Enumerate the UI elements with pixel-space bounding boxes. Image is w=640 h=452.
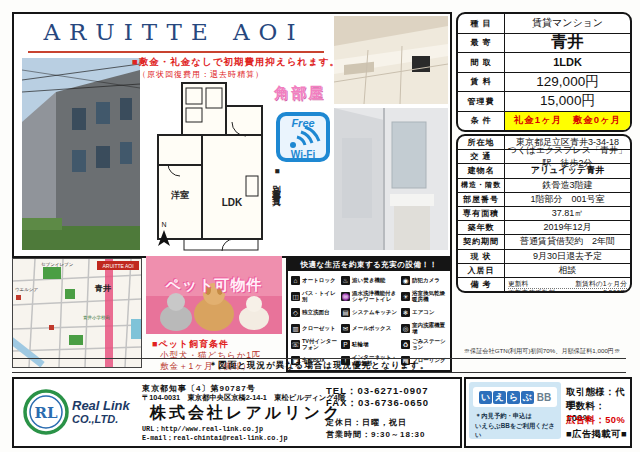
mailbox-icon: ✉ (341, 324, 350, 333)
table-row: 構造・階数鉄骨造3階建 (458, 179, 630, 193)
equipment-item: ▤システムキッチン (341, 304, 401, 320)
table-row: 最 寄青井 (458, 34, 630, 54)
vanity-icon: ◇ (291, 308, 300, 317)
table-row-conditions: 条 件礼金1ヶ月 敷金0ヶ月 (458, 112, 630, 131)
other-room-photo-note: ■別号室参考写真 (271, 166, 283, 192)
catch-copy-line2: （原状回復費用：退去時精算） (138, 69, 264, 80)
pet-photo (146, 256, 282, 334)
table-row: 部屋番号1階部分 001号室 (458, 193, 630, 207)
equipment-item: ◉防犯カメラ (401, 272, 449, 288)
equipment-item: ⌂オートロック (291, 272, 341, 288)
ierabu-note1: ＊内見予約・申込は (475, 412, 532, 421)
table-row: 管理費15,000円 (458, 92, 630, 112)
advertising-fee: 広告料：50% (566, 414, 625, 427)
equipment-item: ◫バス・トイレ別 (291, 288, 341, 304)
company-logo-text2: CO.,LTD. (72, 413, 118, 425)
company-box: RL Real Link CO.,LTD. 東京都知事〔4〕第90787号 〒1… (12, 377, 462, 448)
company-fax: FAX：03-6736-0650 (326, 397, 429, 410)
equipment-item: ◎室内洗濯機置場 (401, 320, 449, 336)
main-photo-box: ARUITTE AOI ■敷金・礼金なしで初期費用抑えられます。 （原状回復費用… (12, 12, 452, 258)
ierabu-logo-bb: BB (537, 392, 551, 403)
bathroom-photo (334, 108, 448, 250)
remarks-row: 備 考 更新料新賃料の1ヶ月分 更新事務手数料5,500円 解約予告2ヶ月前 損… (458, 278, 630, 291)
building-exterior-photo (22, 58, 140, 250)
map-drug-label: ウエルシア (15, 287, 38, 292)
agency-box: い え ら ぶ BB ＊内見予約・申込は いえらぶBBをご利用ください 取引態様… (464, 377, 632, 448)
map-conv-label: セブンイレブン (41, 262, 74, 267)
room-ldk-label: LDK (222, 197, 243, 208)
svg-text:Free: Free (291, 117, 314, 129)
disclaimer-strip: ＊図面と現況が異なる場合は現況優先となります。 (12, 358, 626, 373)
security-camera-icon: ◉ (401, 276, 410, 285)
ierabu-panel: い え ら ぶ BB ＊内見予約・申込は いえらぶBBをご利用ください (469, 382, 561, 439)
title-underline (28, 51, 324, 53)
company-name: 株式会社レアルリンク (150, 403, 342, 424)
bicycle-parking-icon: P (341, 340, 350, 349)
ierabu-logo-kana: ぶ (521, 391, 534, 404)
aircon-icon: ❄ (401, 308, 410, 317)
equipment-grid: ⌂オートロック ♨追い焚き機能 ◉防犯カメラ ◫バス・トイレ別 ♒温水洗浄機能付… (288, 271, 450, 368)
area-map: ARUITTE AOI 青井 セブンイレブン ウエルシア 青井小学校前 (12, 258, 142, 368)
table-row: 間 取1LDK (458, 53, 630, 73)
table-row: 築年数2019年12月 (458, 221, 630, 235)
free-wifi-icon: Free Wi-Fi (276, 112, 330, 162)
kitchen-photo (334, 16, 448, 104)
guarantee-note: ※保証会社GTN(利用可)初回70%、月額保証料1,000円※ (456, 347, 628, 356)
equipment-header: 快適な生活を約束する充実の設備！！ (288, 258, 450, 271)
equipment-item: P駐輪場 (341, 336, 401, 352)
map-school-label: 青井小学校前 (83, 315, 111, 320)
bathroom-dryer-icon: ☀ (401, 292, 410, 301)
equipment-item: ♒温水洗浄機能付き シャワートイレ (341, 288, 401, 304)
table-row: 賃 料129,000円 (458, 73, 630, 93)
equipment-item: ☏TV付インターフォン (291, 336, 341, 352)
table-row: 種 目賃貸マンション (458, 14, 630, 34)
map-building-tag: ARUITTE AOI (102, 263, 133, 269)
ad-posting-ok: ■広告掲載可■ (566, 428, 627, 441)
map-station-label: 青井 (94, 284, 112, 293)
equipment-item: ♻ごみステーション (401, 336, 449, 352)
pet-ok-banner: ペット可物件 (150, 276, 278, 295)
reheating-bath-icon: ♨ (341, 276, 350, 285)
real-link-logo-icon: RL (22, 388, 70, 436)
company-hours: 営業時間：9:30～18:30 (326, 429, 425, 440)
property-flyer: ARUITTE AOI ■敷金・礼金なしで初期費用抑えられます。 （原状回復費用… (0, 0, 640, 452)
autolock-icon: ⌂ (291, 276, 300, 285)
table-row: 建物名アリュイッテ青井 (458, 164, 630, 178)
detail-table: 所在地東京都足立区青井3-34-18 交 通つくばエクスプレス「青井」駅 徒歩2… (456, 134, 632, 293)
svg-text:Wi-Fi: Wi-Fi (291, 149, 316, 160)
ierabu-logo-kana: ら (507, 391, 520, 404)
conditions-highlight: 礼金1ヶ月 敷金0ヶ月 (505, 112, 630, 131)
table-row: 契約期間普通賃貸借契約 2年間 (458, 235, 630, 249)
closet-icon: ▥ (291, 324, 300, 333)
table-row: 入居日相談 (458, 264, 630, 278)
room-west-label: 洋室 (170, 190, 189, 200)
equipment-item: ▥クローゼット (291, 320, 341, 336)
table-row: 交 通つくばエクスプレス「青井」駅 徒歩2分 (458, 150, 630, 164)
table-row: 現 状9月30日退去予定 (458, 250, 630, 264)
separate-bath-toilet-icon: ◫ (291, 292, 300, 301)
system-kitchen-icon: ▤ (341, 308, 350, 317)
ierabu-note2: いえらぶBBをご利用ください (475, 422, 561, 440)
equipment-item: ☀浴室換気乾燥暖房機 (401, 288, 449, 304)
summary-table: 種 目賃貸マンション 最 寄青井 間 取1LDK 賃 料129,000円 管理費… (456, 12, 632, 132)
company-email: E-mail：real-chintai@real-link.co.jp (142, 433, 287, 443)
catch-copy-line1: ■敷金・礼金なしで初期費用抑えられます。 (132, 56, 340, 69)
company-holiday: 定休日：日曜，祝日 (326, 417, 407, 428)
remarks-list: 更新料新賃料の1ヶ月分 更新事務手数料5,500円 解約予告2ヶ月前 損害保険（… (505, 278, 630, 291)
garbage-station-icon: ♻ (401, 340, 410, 349)
equipment-item: ✉メールボックス (341, 320, 401, 336)
equipment-item: ◇独立洗面台 (291, 304, 341, 320)
tv-intercom-icon: ☏ (291, 340, 300, 349)
ierabu-logo-kana: え (493, 391, 506, 404)
corner-room-label: 角部屋 (274, 84, 325, 103)
equipment-item: ♨追い焚き機能 (341, 272, 401, 288)
page-title: ARUITTE AOI (18, 19, 330, 45)
table-row: 専有面積37.81㎡ (458, 207, 630, 221)
ierabu-bb-logo: い え ら ぶ BB (473, 387, 557, 407)
company-logo-text: Real Link (72, 399, 130, 412)
ierabu-logo-kana: い (479, 391, 492, 404)
laundry-space-icon: ◎ (401, 324, 410, 333)
company-address: 〒104-0031 東京都中央区京橋2-14-1 東松ビルディング4階 (142, 393, 345, 403)
equipment-box: 快適な生活を約束する充実の設備！！ ⌂オートロック ♨追い焚き機能 ◉防犯カメラ… (286, 256, 452, 372)
floor-plan: 洋室 LDK N (150, 80, 272, 254)
svg-text:N: N (161, 221, 166, 228)
equipment-item: ❄エアコン (401, 304, 449, 320)
washlet-icon: ♒ (341, 292, 350, 301)
svg-text:RL: RL (34, 404, 57, 422)
